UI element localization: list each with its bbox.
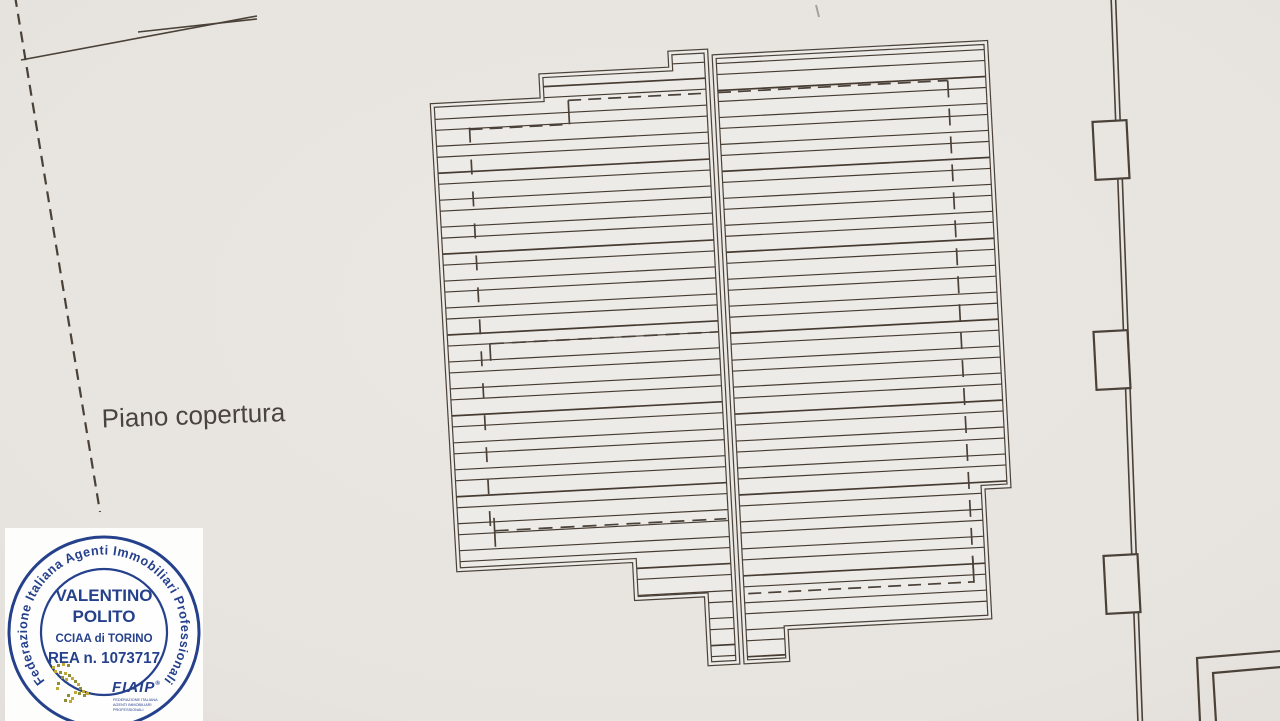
plan-title: Piano copertura bbox=[101, 397, 286, 433]
corner-wall-inner bbox=[1213, 667, 1280, 721]
agent-last-name: POLITO bbox=[73, 607, 136, 626]
right-roof-pitch bbox=[705, 22, 1027, 695]
wall-pillar bbox=[1094, 330, 1131, 390]
fiaip-subtext-1: FEDERAZIONE ITALIANA bbox=[113, 698, 158, 702]
stamp-outer-circle bbox=[9, 537, 199, 721]
agent-stamp: Federazione Italiana Agenti Immobiliari … bbox=[0, 515, 240, 721]
left-roof-pitch bbox=[421, 24, 747, 697]
stray-mark bbox=[816, 5, 819, 17]
wall-pillar bbox=[1093, 120, 1130, 180]
wall-pillar bbox=[1104, 554, 1141, 614]
agent-first-name: VALENTINO bbox=[56, 586, 153, 605]
fiaip-logo-text: FIAIP® bbox=[112, 679, 161, 696]
fiaip-subtext-2: AGENTI IMMOBILIARI bbox=[113, 703, 152, 707]
fiaip-subtext-3: PROFESSIONALI bbox=[113, 708, 144, 712]
scanned-floor-plan-page: Piano copertura Federazione Italiana Age… bbox=[0, 0, 1280, 721]
roof-plan bbox=[421, 9, 1027, 710]
agent-cciaa: CCIAA di TORINO bbox=[55, 633, 152, 645]
boundary-dashed-line bbox=[15, 0, 100, 512]
boundary-line-b bbox=[138, 19, 257, 32]
corner-wall-outer bbox=[1197, 651, 1280, 721]
eaves-dashed-line bbox=[490, 344, 491, 361]
